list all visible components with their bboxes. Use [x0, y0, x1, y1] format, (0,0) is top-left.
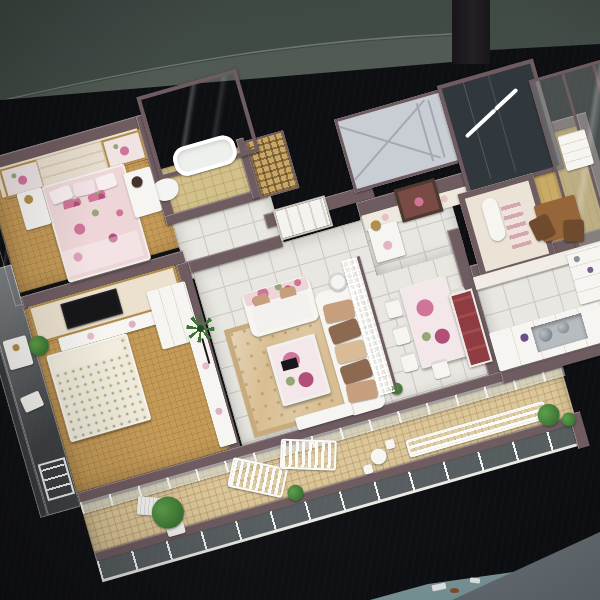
stair-handrail: [494, 88, 519, 111]
x-brace-line: [351, 99, 425, 183]
stair-handrail: [465, 108, 497, 138]
pantry-floral-tiles: [500, 200, 532, 250]
lounge-chair: [280, 439, 337, 471]
glass-seam: [463, 82, 492, 178]
apartment-scale-model: [0, 0, 600, 600]
photo-apartment-model: [0, 0, 600, 600]
study-chair: [564, 219, 585, 242]
